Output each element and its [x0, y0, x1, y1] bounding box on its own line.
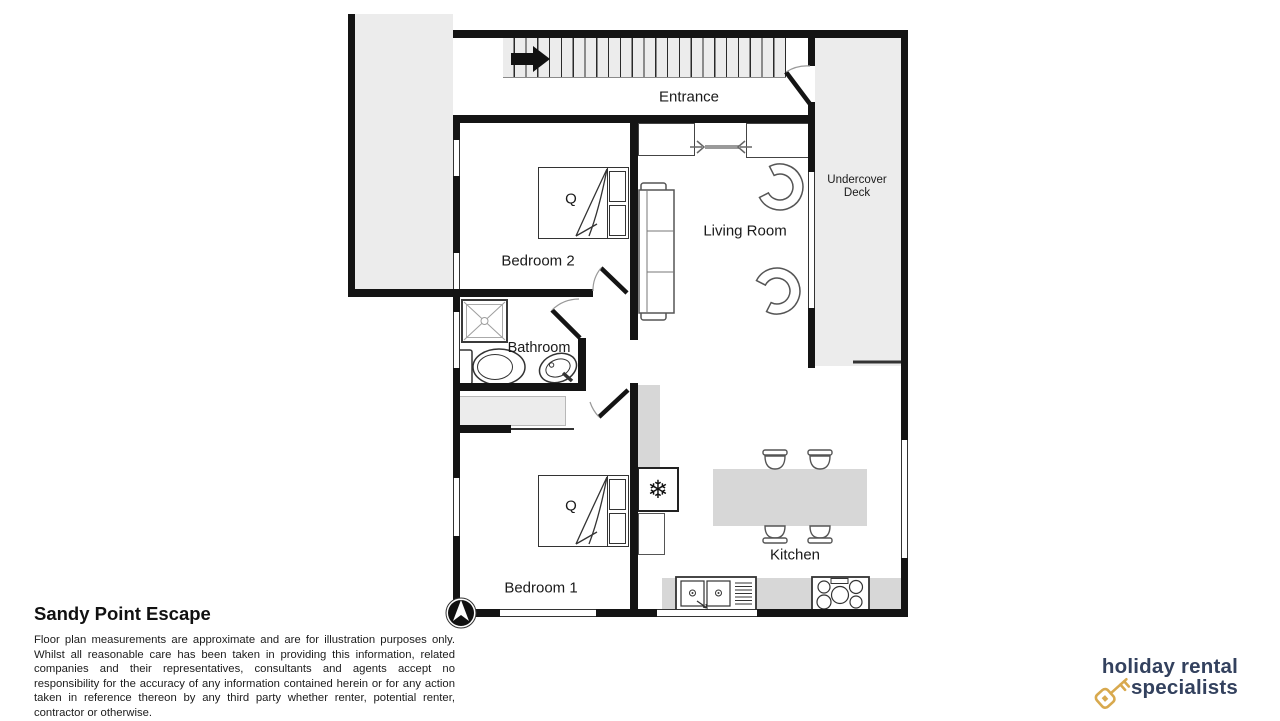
label-living-room: Living Room [703, 223, 786, 240]
label-bed-q: Q [565, 191, 577, 208]
disclaimer-text: Floor plan measurements are approximate … [34, 633, 455, 721]
label-bedroom2: Bedroom 2 [501, 253, 574, 270]
label-entrance: Entrance [659, 89, 719, 106]
label-kitchen: Kitchen [770, 547, 820, 564]
page-title: Sandy Point Escape [34, 603, 211, 625]
label-bed-q: Q [565, 498, 577, 515]
label-bedroom1: Bedroom 1 [504, 580, 577, 597]
north-arrow-icon [446, 598, 476, 628]
label-bathroom: Bathroom [508, 340, 571, 356]
door-swing-arc [552, 66, 810, 417]
door-leaf [552, 72, 810, 417]
key-icon [1092, 670, 1140, 714]
label-undercover-deck: Undercover Deck [819, 174, 895, 200]
floor-plan: ❄ [0, 0, 1280, 720]
